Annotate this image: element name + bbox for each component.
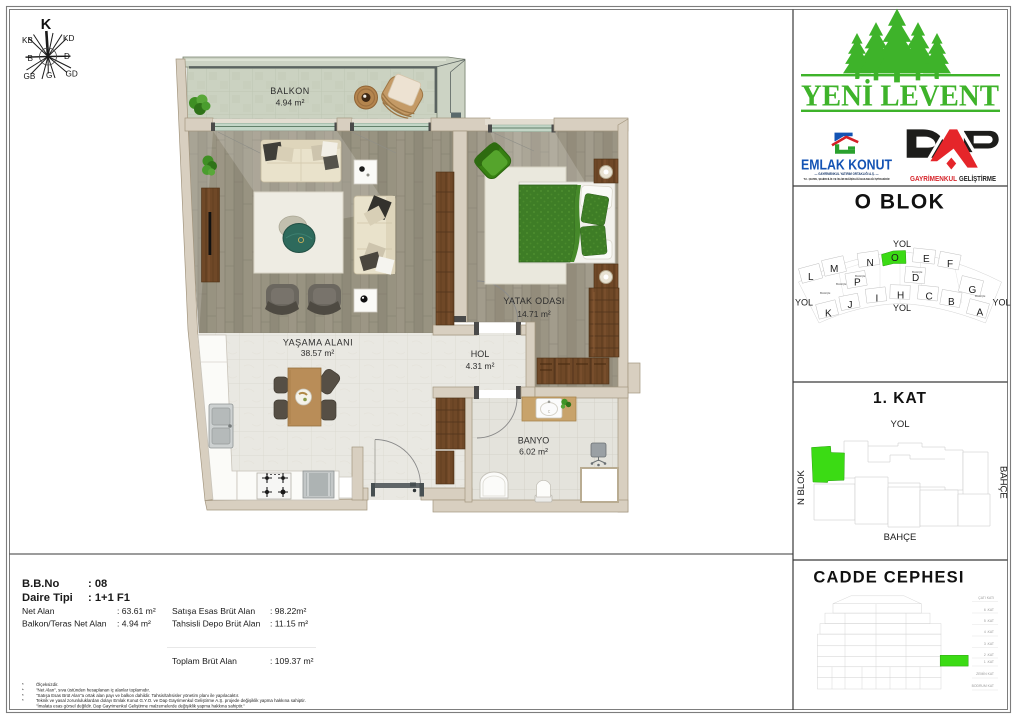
svg-text:B: B <box>948 297 955 308</box>
svg-text:ZEMİN KAT: ZEMİN KAT <box>976 671 994 676</box>
svg-text:38.57 m²: 38.57 m² <box>301 348 335 358</box>
svg-text:ÇATI KATI: ÇATI KATI <box>978 596 994 600</box>
svg-text:4 .KAT: 4 .KAT <box>984 630 994 634</box>
svg-text:14.71 m²: 14.71 m² <box>517 309 551 319</box>
svg-text:CADDE CEPHESI: CADDE CEPHESI <box>813 569 964 587</box>
svg-text:1 .KAT: 1 .KAT <box>984 660 994 664</box>
svg-text:C: C <box>926 292 933 303</box>
svg-text:KB: KB <box>22 36 33 45</box>
svg-text:M: M <box>830 264 838 275</box>
svg-text:D: D <box>912 273 919 284</box>
svg-text:YOL: YOL <box>890 419 909 430</box>
svg-text:BAHÇE: BAHÇE <box>998 466 1009 499</box>
svg-text:3 .KAT: 3 .KAT <box>984 642 994 646</box>
svg-text:T.C. ÇEVRE, ŞEHİRCİLİK VE İKLİ: T.C. ÇEVRE, ŞEHİRCİLİK VE İKLİM DEĞİŞİKL… <box>804 176 891 181</box>
svg-text:YATAK ODASI: YATAK ODASI <box>503 296 564 306</box>
svg-text:Tahsisli Depo Brüt Alan: Tahsisli Depo Brüt Alan <box>172 619 261 629</box>
svg-text:: 11.15 m²: : 11.15 m² <box>270 619 308 629</box>
svg-text:YOL: YOL <box>893 303 911 313</box>
svg-text:P: P <box>854 278 861 289</box>
svg-text:: 1+1 F1: : 1+1 F1 <box>88 592 130 604</box>
svg-text:E: E <box>923 254 930 265</box>
svg-text:Teknik ve yasal zorunluluklard: Teknik ve yasal zorunluluklardan dolayı … <box>36 698 306 703</box>
svg-text:5 .KAT: 5 .KAT <box>984 619 994 623</box>
svg-text:: 4.94 m²: : 4.94 m² <box>117 619 151 629</box>
svg-text:BAHÇE: BAHÇE <box>820 291 830 295</box>
svg-text:"İmalata esas görsel değildir.: "İmalata esas görsel değildir. Dap Gayri… <box>36 704 245 709</box>
svg-text:6.02 m²: 6.02 m² <box>519 447 548 457</box>
svg-text:"Net Alan", sıva üstünden hesa: "Net Alan", sıva üstünden hesaplanan iç … <box>36 687 150 692</box>
svg-text:F: F <box>947 259 953 270</box>
svg-text:G: G <box>46 71 52 80</box>
svg-text:H: H <box>897 291 904 302</box>
svg-text:"Satışa Esas Brüt Alan"a ortak: "Satışa Esas Brüt Alan"a ortak alan payı… <box>36 693 239 698</box>
svg-text:Satışa Esas Brüt Alan: Satışa Esas Brüt Alan <box>172 606 255 616</box>
svg-text:YOL: YOL <box>993 298 1011 308</box>
svg-text:— GAYRİMENKUL YATIRIM ORTAKLIĞ: — GAYRİMENKUL YATIRIM ORTAKLIĞI A.Ş. — <box>815 171 880 176</box>
svg-text:GAYRİMENKUL: GAYRİMENKUL <box>910 174 957 183</box>
svg-text:BODRUM KAT: BODRUM KAT <box>972 684 994 688</box>
svg-text:YOL: YOL <box>893 239 911 249</box>
svg-text:O: O <box>891 253 899 264</box>
svg-text:B: B <box>28 54 34 63</box>
svg-text:4.31 m²: 4.31 m² <box>466 361 495 371</box>
svg-text:L: L <box>808 272 814 283</box>
svg-text:6 .KAT: 6 .KAT <box>984 608 994 612</box>
svg-text:B.B.No: B.B.No <box>22 578 59 590</box>
svg-text:BAHÇE: BAHÇE <box>836 282 846 286</box>
svg-text:A: A <box>977 308 984 319</box>
svg-text:*: * <box>22 682 24 687</box>
svg-text:BAHÇE: BAHÇE <box>855 274 865 278</box>
svg-text:Net Alan: Net Alan <box>22 606 55 616</box>
svg-text:: 109.37 m²: : 109.37 m² <box>270 656 314 666</box>
svg-text:: 63.61 m²: : 63.61 m² <box>117 606 156 616</box>
svg-text:Balkon/Teras Net Alan: Balkon/Teras Net Alan <box>22 619 107 629</box>
svg-text:HOL: HOL <box>471 349 490 359</box>
svg-text:BANYO: BANYO <box>518 436 550 446</box>
svg-text:YOL: YOL <box>795 298 813 308</box>
svg-text:: 98.22m²: : 98.22m² <box>270 606 306 616</box>
svg-text:N: N <box>867 258 874 269</box>
svg-text:GD: GD <box>66 70 78 79</box>
svg-text:: 08: : 08 <box>88 578 107 590</box>
svg-text:BAHÇE: BAHÇE <box>912 270 922 274</box>
svg-text:KD: KD <box>63 34 74 43</box>
svg-text:Daire Tipi: Daire Tipi <box>22 592 73 604</box>
svg-text:BALKON: BALKON <box>270 86 310 96</box>
svg-text:2 .KAT: 2 .KAT <box>984 653 994 657</box>
svg-text:BAHÇE: BAHÇE <box>884 532 917 543</box>
svg-text:K: K <box>825 309 832 320</box>
svg-text:Toplam Brüt Alan: Toplam Brüt Alan <box>172 656 237 666</box>
svg-text:YENİ LEVENT: YENİ LEVENT <box>801 78 999 113</box>
svg-text:GELİŞTİRME: GELİŞTİRME <box>959 174 996 183</box>
svg-text:J: J <box>848 300 853 311</box>
svg-text:1. KAT: 1. KAT <box>873 390 927 407</box>
svg-text:*: * <box>22 693 24 698</box>
svg-text:O BLOK: O BLOK <box>855 191 946 214</box>
svg-text:N BLOK: N BLOK <box>796 469 807 505</box>
svg-text:4.94 m²: 4.94 m² <box>276 98 305 108</box>
svg-text:GB: GB <box>24 72 36 81</box>
svg-text:D: D <box>64 52 70 61</box>
svg-text:YAŞAMA ALANI: YAŞAMA ALANI <box>283 338 353 348</box>
svg-text:I: I <box>876 294 879 305</box>
svg-text:K: K <box>41 17 52 33</box>
svg-text:*: * <box>22 698 24 703</box>
svg-text:BAHÇE: BAHÇE <box>975 294 985 298</box>
svg-text:*: * <box>22 687 24 692</box>
svg-text:Ölçeksizdir.: Ölçeksizdir. <box>36 682 58 687</box>
